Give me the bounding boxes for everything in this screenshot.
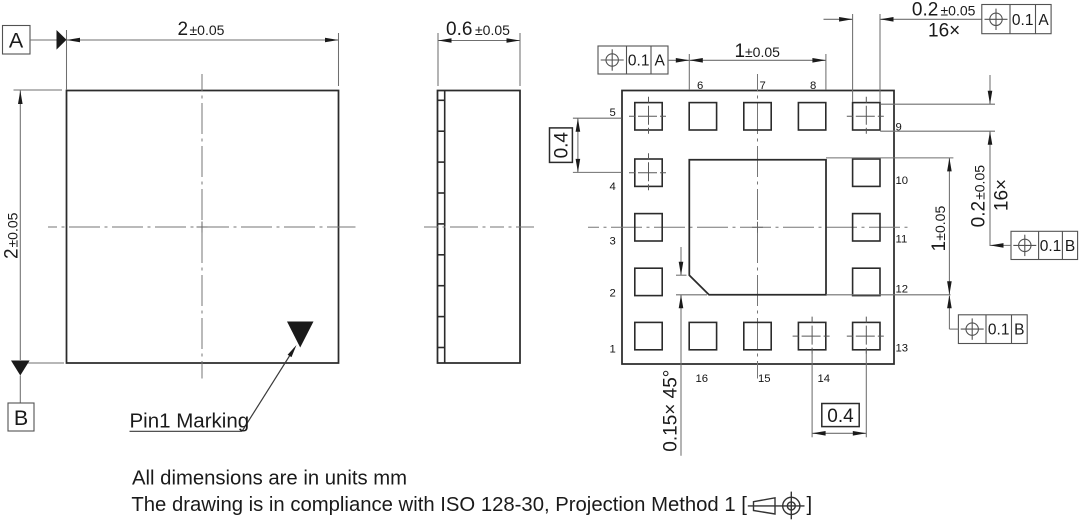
svg-text:0.1: 0.1 (1040, 238, 1062, 255)
svg-text:1: 1 (929, 241, 950, 252)
svg-text:16: 16 (696, 373, 709, 385)
svg-text:0.1: 0.1 (628, 53, 650, 70)
svg-text:5: 5 (610, 107, 616, 119)
svg-text:10: 10 (896, 175, 909, 187)
svg-text:]: ] (807, 494, 813, 516)
svg-text:0.2: 0.2 (969, 201, 990, 227)
svg-text:0.6: 0.6 (446, 19, 472, 40)
svg-text:±0.05: ±0.05 (5, 212, 21, 247)
svg-text:0.1: 0.1 (1012, 12, 1034, 29)
svg-text:±0.05: ±0.05 (932, 206, 948, 241)
svg-text:A: A (9, 29, 24, 53)
svg-text:±0.05: ±0.05 (972, 165, 988, 200)
svg-text:A: A (1038, 12, 1049, 29)
svg-text:The drawing is in compliance w: The drawing is in compliance with ISO 12… (131, 494, 747, 516)
svg-text:0.4: 0.4 (552, 132, 573, 159)
svg-text:2: 2 (2, 248, 23, 259)
svg-text:B: B (14, 406, 28, 430)
svg-text:±0.05: ±0.05 (475, 22, 510, 38)
svg-text:0.15× 45°: 0.15× 45° (661, 370, 682, 452)
svg-text:16×: 16× (928, 21, 960, 42)
svg-text:3: 3 (610, 236, 616, 248)
svg-text:4: 4 (610, 181, 616, 193)
svg-text:13: 13 (896, 342, 909, 354)
svg-text:1: 1 (735, 41, 746, 62)
svg-text:0.2: 0.2 (912, 0, 938, 20)
svg-text:2: 2 (610, 288, 616, 300)
svg-text:11: 11 (896, 234, 908, 246)
svg-text:A: A (655, 53, 666, 70)
svg-text:14: 14 (818, 373, 831, 385)
svg-text:±0.05: ±0.05 (941, 2, 976, 18)
svg-text:B: B (1014, 322, 1024, 339)
svg-text:All dimensions are in units mm: All dimensions are in units mm (132, 467, 407, 489)
svg-text:±0.05: ±0.05 (190, 22, 225, 38)
svg-text:±0.05: ±0.05 (745, 44, 780, 60)
svg-text:8: 8 (810, 80, 816, 92)
svg-text:0.1: 0.1 (988, 322, 1010, 339)
svg-text:1: 1 (610, 344, 616, 356)
svg-text:Pin1 Marking: Pin1 Marking (130, 410, 250, 433)
svg-text:0.4: 0.4 (827, 406, 854, 427)
svg-text:7: 7 (760, 80, 766, 92)
svg-text:15: 15 (758, 373, 771, 385)
svg-text:2: 2 (178, 19, 189, 40)
svg-text:16×: 16× (992, 179, 1013, 211)
svg-text:12: 12 (896, 283, 909, 295)
svg-text:B: B (1065, 238, 1075, 255)
svg-text:6: 6 (697, 80, 703, 92)
